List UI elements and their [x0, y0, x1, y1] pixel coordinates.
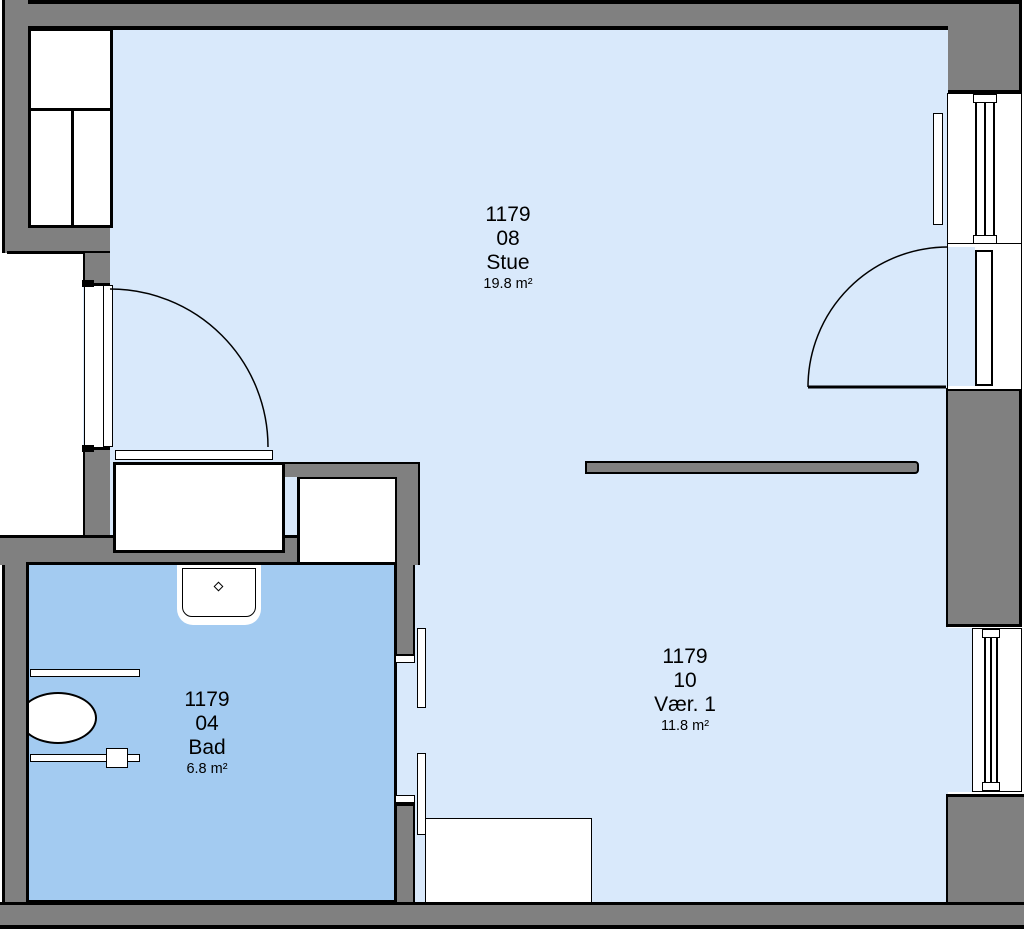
- bath-door-jamb-top: [395, 655, 415, 663]
- room-area: 11.8 m²: [615, 717, 755, 736]
- room-code: 04: [137, 712, 277, 736]
- outside-area-left: [0, 253, 83, 535]
- room-number: 1179: [137, 688, 277, 712]
- toilet: [26, 692, 97, 744]
- room-area: 6.8 m²: [137, 760, 277, 779]
- balcony-door-threshold: [948, 247, 975, 386]
- hall-wardrobe: [113, 462, 285, 553]
- window-vaer-sash-bottom: [982, 782, 1000, 791]
- room-label-vaer1: 1179 10 Vær. 1 11.8 m²: [615, 645, 755, 736]
- wall-left-lower: [2, 535, 28, 929]
- room-name: Bad: [137, 736, 277, 760]
- window-stue-sash-top: [973, 94, 997, 103]
- entrance-door-leaf: [103, 285, 113, 447]
- wall-entrance-jamb-bottom: [83, 448, 110, 535]
- entrance-door-hinge-bottom: [82, 445, 94, 452]
- bath-vestibule: [297, 477, 397, 562]
- wall-above-vestibule: [285, 462, 397, 477]
- wall-right-bottom-block: [946, 794, 1024, 902]
- window-stue-glazing: [975, 100, 995, 237]
- room-area: 19.8 m²: [438, 275, 578, 294]
- room-name: Stue: [438, 251, 578, 275]
- wall-corner-right-of-vestibule: [397, 462, 420, 565]
- room-number: 1179: [438, 203, 578, 227]
- sink-basin: [182, 568, 256, 617]
- wall-left-upper: [2, 0, 28, 253]
- grab-bar-upper: [30, 669, 140, 677]
- room-code: 10: [615, 669, 755, 693]
- wall-bath-right-upper: [395, 565, 415, 657]
- wall-bottom: [0, 902, 1024, 929]
- toilet-roll-holder: [106, 748, 128, 768]
- wardrobe-divider-vertical: [71, 111, 74, 225]
- room-code: 08: [438, 227, 578, 251]
- balcony-door-leaf-closed: [975, 250, 993, 386]
- room-divider-wall: [585, 461, 919, 474]
- wall-under-cabinet: [7, 228, 110, 254]
- window-vaer-glazing-midline: [990, 636, 992, 784]
- wardrobe-entrance: [28, 28, 113, 228]
- window-vaer-glazing: [984, 636, 998, 784]
- wall-bath-right-lower: [395, 803, 415, 902]
- wall-right-top-block: [948, 0, 1022, 93]
- window-vaer-bay: [948, 628, 973, 792]
- floor-plan: 1179 08 Stue 19.8 m² 1179 04 Bad 6.8 m² …: [0, 0, 1024, 929]
- wall-top: [7, 0, 948, 29]
- room-number: 1179: [615, 645, 755, 669]
- wall-right-mid-block: [946, 388, 1022, 627]
- sliding-door-track: [115, 450, 273, 460]
- bath-door-jamb-bottom: [395, 795, 415, 803]
- bath-sliding-door-panel-upper: [417, 628, 426, 708]
- room-label-bad: 1179 04 Bad 6.8 m²: [137, 688, 277, 779]
- window-stue-glazing-midline: [984, 100, 986, 237]
- window-vaer-sash-top: [982, 629, 1000, 638]
- entrance-door-hinge-top: [82, 280, 94, 287]
- sink: [177, 565, 261, 625]
- radiator-stue: [933, 113, 943, 225]
- bedroom-furniture: [425, 818, 592, 903]
- room-name: Vær. 1: [615, 693, 755, 717]
- room-label-stue: 1179 08 Stue 19.8 m²: [438, 203, 578, 294]
